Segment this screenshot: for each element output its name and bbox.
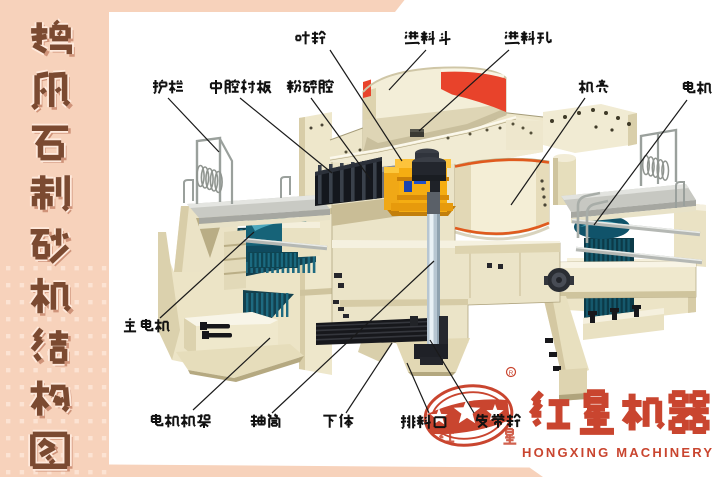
svg-text:HONGXING MACHINERY: HONGXING MACHINERY	[522, 445, 714, 460]
svg-text:R: R	[509, 370, 514, 377]
